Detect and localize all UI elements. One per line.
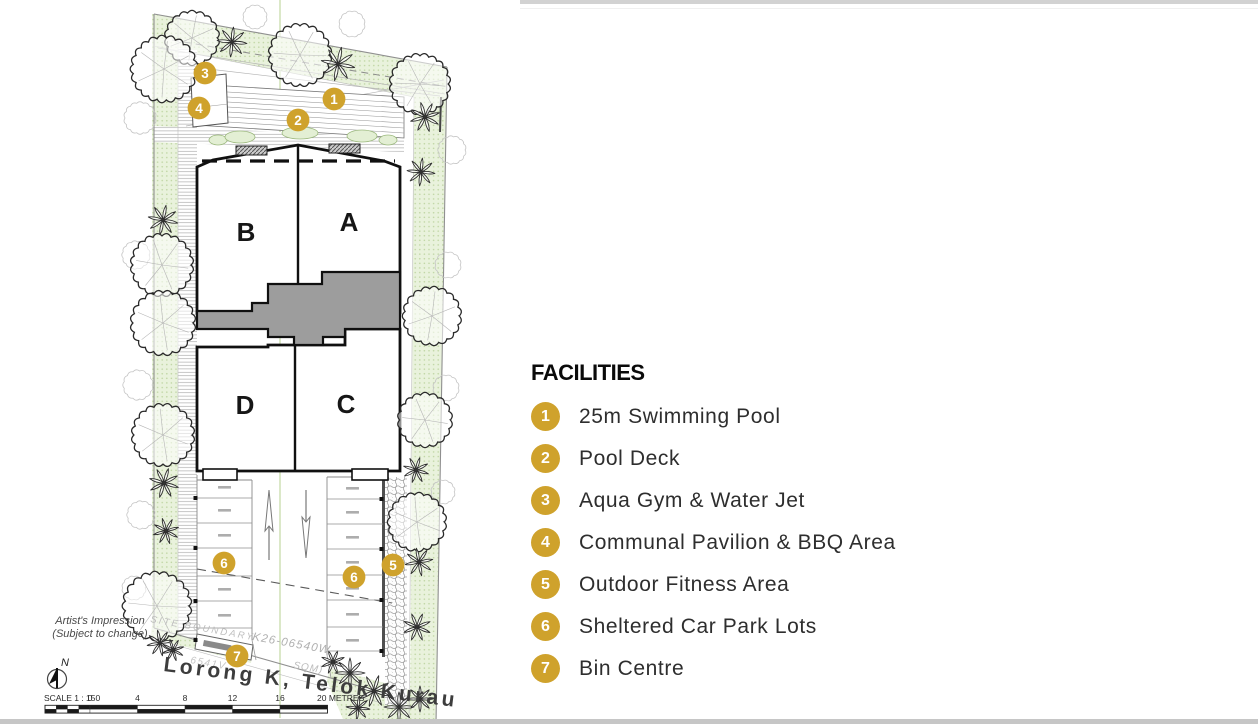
plan-marker-number: 5 — [389, 558, 397, 573]
facility-marker-2: 2 — [531, 444, 560, 473]
plan-marker-number: 6 — [220, 556, 228, 571]
tree-canopy — [131, 234, 194, 297]
stall-dimension-text — [346, 511, 359, 514]
legend-item: 6Sheltered Car Park Lots — [531, 612, 1211, 641]
plan-marker-2: 2 — [287, 109, 310, 132]
plan-marker-1: 1 — [323, 88, 346, 111]
facility-label: Outdoor Fitness Area — [579, 573, 789, 597]
plan-marker-6: 6 — [213, 552, 236, 575]
scale-tick: 12 — [228, 693, 238, 703]
boundary-post — [380, 547, 384, 551]
block-label-a: A — [340, 207, 359, 237]
buildings — [197, 144, 400, 480]
facility-marker-1: 1 — [531, 402, 560, 431]
stall-dimension-text — [218, 509, 231, 512]
stall-dimension-text — [346, 613, 359, 616]
boundary-post — [380, 497, 384, 501]
block-label-d: D — [236, 390, 255, 420]
facilities-legend: FACILITIES 125m Swimming Pool2Pool Deck3… — [531, 361, 1211, 696]
north-label: N — [61, 657, 69, 669]
scale-end-label: 20 METRES — [317, 693, 365, 703]
plan-marker-number: 1 — [330, 92, 338, 107]
plan-marker-number: 2 — [294, 113, 302, 128]
planter-box-left — [236, 146, 267, 155]
block-dc-outline — [197, 329, 400, 471]
scale-tick: 8 — [183, 693, 188, 703]
disclaimer-note-line2: (Subject to change) — [52, 628, 148, 640]
plan-marker-number: 3 — [201, 66, 209, 81]
scale-tick: 16 — [275, 693, 285, 703]
tree-canopy — [269, 24, 332, 87]
boundary-post — [194, 546, 198, 550]
tree-canopy — [132, 404, 195, 467]
stall-dimension-text — [346, 561, 359, 564]
plan-marker-6: 6 — [343, 566, 366, 589]
facility-marker-4: 4 — [531, 528, 560, 557]
site-plan-page: SITE BOUNDARYK26-06540W6541VSQM) N Artis… — [0, 0, 1258, 724]
facility-label: Sheltered Car Park Lots — [579, 615, 817, 639]
stall-dimension-text — [218, 614, 231, 617]
site-plan: SITE BOUNDARYK26-06540W6541VSQM) N Artis… — [0, 0, 520, 724]
tree-canopy — [398, 392, 453, 447]
legend-item: 7Bin Centre — [531, 654, 1211, 683]
scale-tick: 4 — [135, 693, 140, 703]
plan-marker-7: 7 — [226, 645, 249, 668]
disclaimer-note-line1: Artist's Impression — [54, 615, 145, 627]
stall-dimension-text — [218, 588, 231, 591]
boundary-post — [380, 598, 384, 602]
planter-box-right — [329, 144, 360, 153]
scale-tick: 0 — [88, 693, 93, 703]
plan-marker-number: 6 — [350, 570, 358, 585]
facility-marker-5: 5 — [531, 570, 560, 599]
plan-marker-3: 3 — [194, 62, 217, 85]
facility-label: Bin Centre — [579, 657, 684, 681]
legend-title: FACILITIES — [531, 361, 1211, 385]
legend-item: 3Aqua Gym & Water Jet — [531, 486, 1211, 515]
facility-label: Pool Deck — [579, 447, 680, 471]
legend-item: 2Pool Deck — [531, 444, 1211, 473]
facility-marker-6: 6 — [531, 612, 560, 641]
boundary-post — [194, 496, 198, 500]
facility-marker-7: 7 — [531, 654, 560, 683]
plan-marker-number: 7 — [233, 649, 241, 664]
legend-items: 125m Swimming Pool2Pool Deck3Aqua Gym & … — [531, 402, 1211, 683]
porch-left — [203, 469, 237, 480]
boundary-post — [194, 638, 198, 642]
facility-label: 25m Swimming Pool — [579, 405, 781, 429]
block-label-c: C — [337, 389, 356, 419]
facility-marker-3: 3 — [531, 486, 560, 515]
plan-marker-number: 4 — [195, 101, 203, 116]
tree-canopy — [131, 291, 196, 356]
plan-marker-4: 4 — [188, 97, 211, 120]
facility-label: Communal Pavilion & BBQ Area — [579, 531, 896, 555]
plan-marker-5: 5 — [382, 554, 405, 577]
boundary-post — [380, 649, 384, 653]
tree-canopy — [390, 54, 451, 115]
page-bottom-border — [0, 719, 1258, 724]
legend-item: 4Communal Pavilion & BBQ Area — [531, 528, 1211, 557]
stall-dimension-text — [346, 487, 359, 490]
legend-item: 125m Swimming Pool — [531, 402, 1211, 431]
stall-dimension-text — [218, 486, 231, 489]
stall-dimension-text — [218, 534, 231, 537]
facility-label: Aqua Gym & Water Jet — [579, 489, 805, 513]
block-label-b: B — [237, 217, 256, 247]
boundary-post — [194, 599, 198, 603]
legend-item: 5Outdoor Fitness Area — [531, 570, 1211, 599]
stall-dimension-text — [346, 639, 359, 642]
stall-dimension-text — [346, 536, 359, 539]
porch-right — [352, 469, 388, 480]
